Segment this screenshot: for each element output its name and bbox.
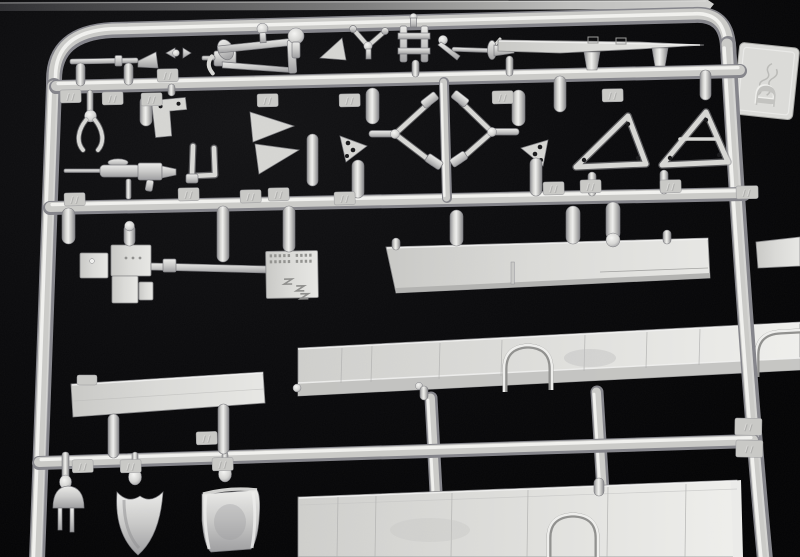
sprue-photo-svg: D D	[0, 0, 800, 557]
sprue-photo: D D	[0, 0, 800, 557]
film-grain-overlay	[0, 0, 800, 557]
